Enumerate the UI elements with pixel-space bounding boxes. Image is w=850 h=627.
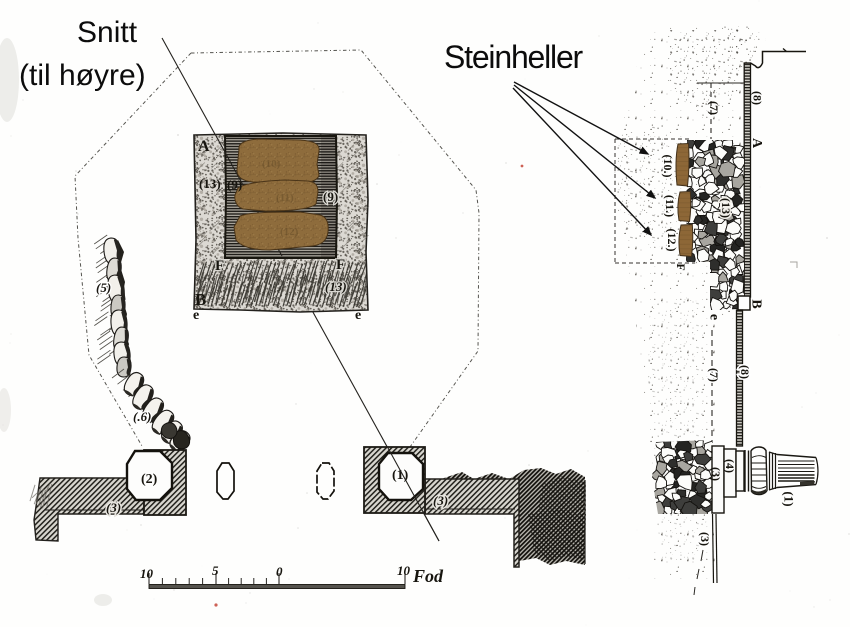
svg-text:Steinheller: Steinheller <box>444 39 584 75</box>
svg-text:(12): (12) <box>280 226 299 238</box>
svg-text:A: A <box>749 138 764 149</box>
svg-text:(3): (3) <box>106 500 121 515</box>
svg-text:(13): (13) <box>719 198 733 218</box>
svg-text:(3): (3) <box>709 467 723 481</box>
svg-text:e: e <box>355 308 361 323</box>
svg-text:e: e <box>707 314 722 320</box>
svg-text:(8): (8) <box>751 91 765 105</box>
svg-text:Fod: Fod <box>412 566 444 586</box>
svg-text:(7): (7) <box>707 368 721 382</box>
svg-text:(13): (13) <box>325 279 347 294</box>
svg-text:(10): (10) <box>262 158 281 170</box>
svg-text:(til høyre): (til høyre) <box>19 59 146 92</box>
svg-text:(11.): (11.) <box>663 195 677 217</box>
svg-text:F: F <box>674 263 688 270</box>
svg-text:Snitt: Snitt <box>77 16 138 49</box>
svg-text:(7): (7) <box>707 101 721 115</box>
svg-text:B: B <box>749 299 764 308</box>
svg-text:(12.): (12.) <box>665 229 679 252</box>
svg-text:(3): (3) <box>698 532 712 546</box>
svg-text:(9): (9) <box>323 189 338 204</box>
svg-text:(9): (9) <box>227 177 242 192</box>
svg-text:(3): (3) <box>433 493 448 508</box>
svg-text:(2): (2) <box>141 472 158 487</box>
svg-text:(13): (13) <box>199 176 221 191</box>
svg-text:(8): (8) <box>738 365 752 379</box>
svg-text:0: 0 <box>276 564 283 579</box>
svg-text:(1): (1) <box>782 491 797 506</box>
svg-text:F: F <box>336 257 345 273</box>
svg-text:e: e <box>193 308 199 323</box>
svg-text:F: F <box>215 258 224 274</box>
svg-text:(10.): (10.) <box>661 155 675 178</box>
svg-text:B: B <box>195 290 206 309</box>
svg-text:(4): (4) <box>723 459 737 473</box>
svg-text:(11): (11) <box>276 192 294 204</box>
svg-text:10: 10 <box>397 563 411 578</box>
svg-text:5: 5 <box>212 563 219 578</box>
svg-text:10: 10 <box>140 566 154 581</box>
svg-text:(5): (5) <box>96 280 111 295</box>
svg-text:A: A <box>198 138 210 155</box>
svg-text:(.6): (.6) <box>133 409 151 424</box>
